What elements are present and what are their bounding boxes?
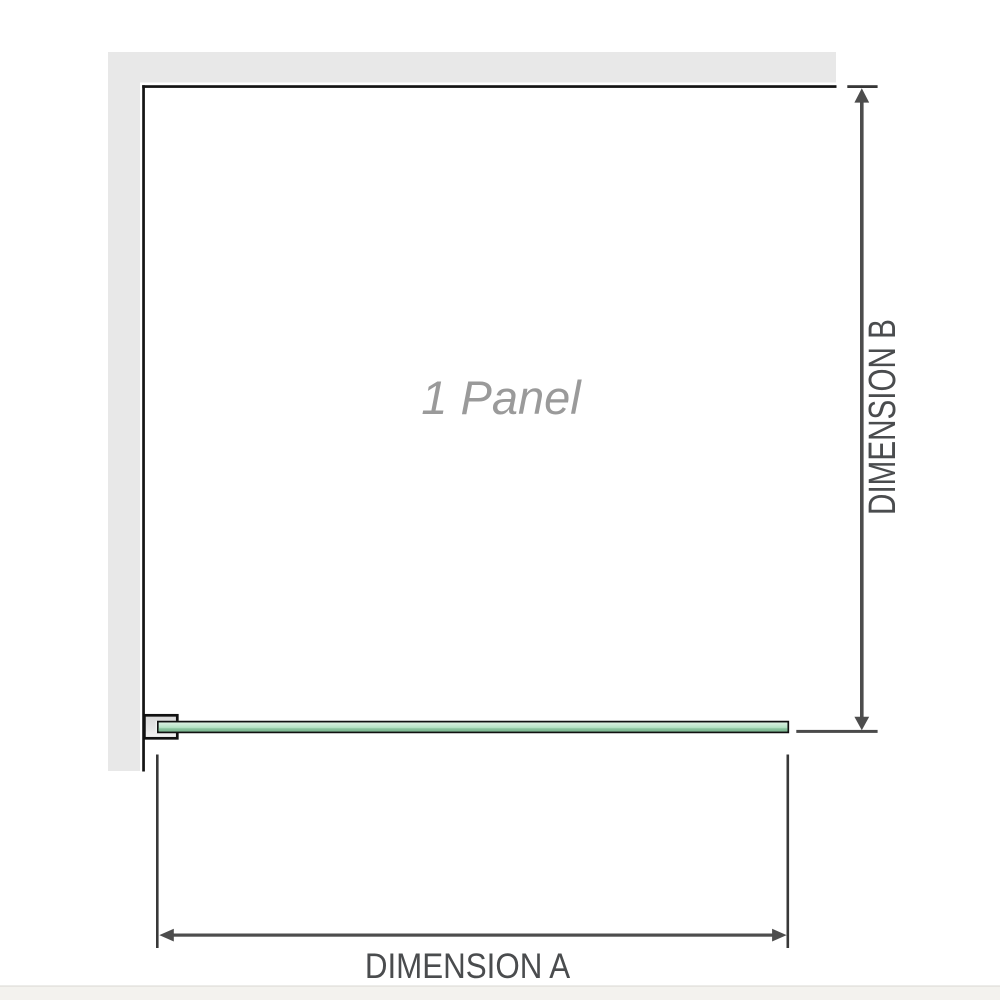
- svg-text:DIMENSION A: DIMENSION A: [365, 947, 571, 986]
- svg-text:DIMENSION B: DIMENSION B: [862, 319, 904, 515]
- svg-text:1 Panel: 1 Panel: [421, 371, 582, 424]
